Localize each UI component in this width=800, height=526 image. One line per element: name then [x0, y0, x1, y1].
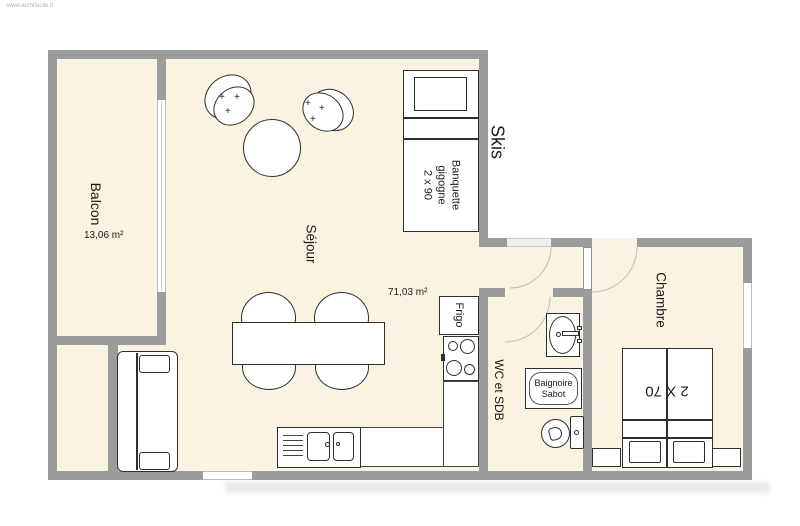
banquette-fold-line-1	[404, 117, 478, 119]
sink-drainboard	[283, 435, 303, 460]
entry-door-arc	[510, 247, 551, 288]
fridge-label: Frigo	[453, 302, 465, 327]
armchair-1-tuft-mark: +	[219, 93, 225, 103]
washbasin-faucet-handle	[577, 326, 582, 330]
bed-pillow	[629, 441, 661, 463]
bed-size-label: 2 X 70	[645, 383, 688, 400]
bed-divider	[666, 349, 668, 467]
room-label-chambre: Chambre	[654, 272, 669, 328]
bathtub-inner: Baignoire Sabot	[529, 372, 578, 405]
wc-door-arc	[505, 297, 550, 342]
kitchen-counter-vertical	[443, 381, 479, 467]
sofa-backrest-line	[136, 353, 138, 470]
sink-basin	[333, 432, 354, 461]
dining-table	[232, 322, 385, 365]
bathtub-label-line1: Baignoire	[534, 378, 572, 388]
washbasin-drain-dot	[556, 332, 561, 337]
banquette-label-line2: gigogne	[434, 160, 448, 210]
bed-blanket-line-2	[623, 437, 712, 439]
coffee-table	[243, 119, 301, 177]
sofa-cushion	[139, 452, 170, 470]
room-label-wc-sdb: WC et SDB	[492, 359, 506, 420]
sink-faucet-dot	[336, 442, 340, 446]
banquette-label-line1: Banquette	[448, 160, 462, 210]
stove-burner	[446, 360, 462, 376]
banquette-label: Banquette gigogne 2 x 90	[420, 160, 461, 210]
room-label-balcon: Balcon	[88, 183, 104, 226]
armchair-2-tuft-mark: +	[319, 104, 325, 114]
stove-burner	[448, 341, 458, 351]
stove-knob	[441, 354, 445, 361]
armchair-2-tuft-mark: +	[310, 115, 316, 125]
room-label-sejour: Séjour	[304, 224, 319, 263]
area-label-balcon: 13,06 m²	[84, 230, 123, 241]
banquette-fold-line-2	[404, 138, 478, 140]
bathtub-label-line2: Sabot	[534, 389, 572, 399]
kitchen-counter-horizontal	[360, 427, 444, 467]
bed-pillow	[673, 441, 705, 463]
sink-faucet-dot	[325, 442, 330, 447]
armchair-1-tuft-mark: +	[234, 93, 240, 103]
toilet-tank-button	[574, 430, 579, 435]
armchair-2-tuft-mark: +	[305, 99, 311, 109]
chambre-door-arc	[592, 247, 637, 292]
sofa-cushion	[139, 355, 170, 373]
nightstand	[712, 448, 741, 467]
area-label-sejour: 71,03 m²	[388, 287, 427, 298]
armchair-1-tuft-mark: +	[225, 107, 231, 117]
watermark-text: www.archifacile.fr	[7, 3, 54, 9]
stove-burner	[460, 339, 475, 354]
floor-plan: www.archifacile.fr + + + + + +	[0, 0, 800, 526]
bed-blanket-line-1	[623, 419, 712, 421]
nightstand	[592, 448, 621, 467]
room-label-skis: Skis	[487, 125, 508, 159]
washbasin-faucet	[562, 331, 579, 336]
stove-burner	[464, 364, 475, 375]
banquette-label-line3: 2 x 90	[420, 160, 434, 210]
banquette-pillow	[414, 77, 467, 111]
washbasin-faucet-handle	[577, 339, 582, 343]
